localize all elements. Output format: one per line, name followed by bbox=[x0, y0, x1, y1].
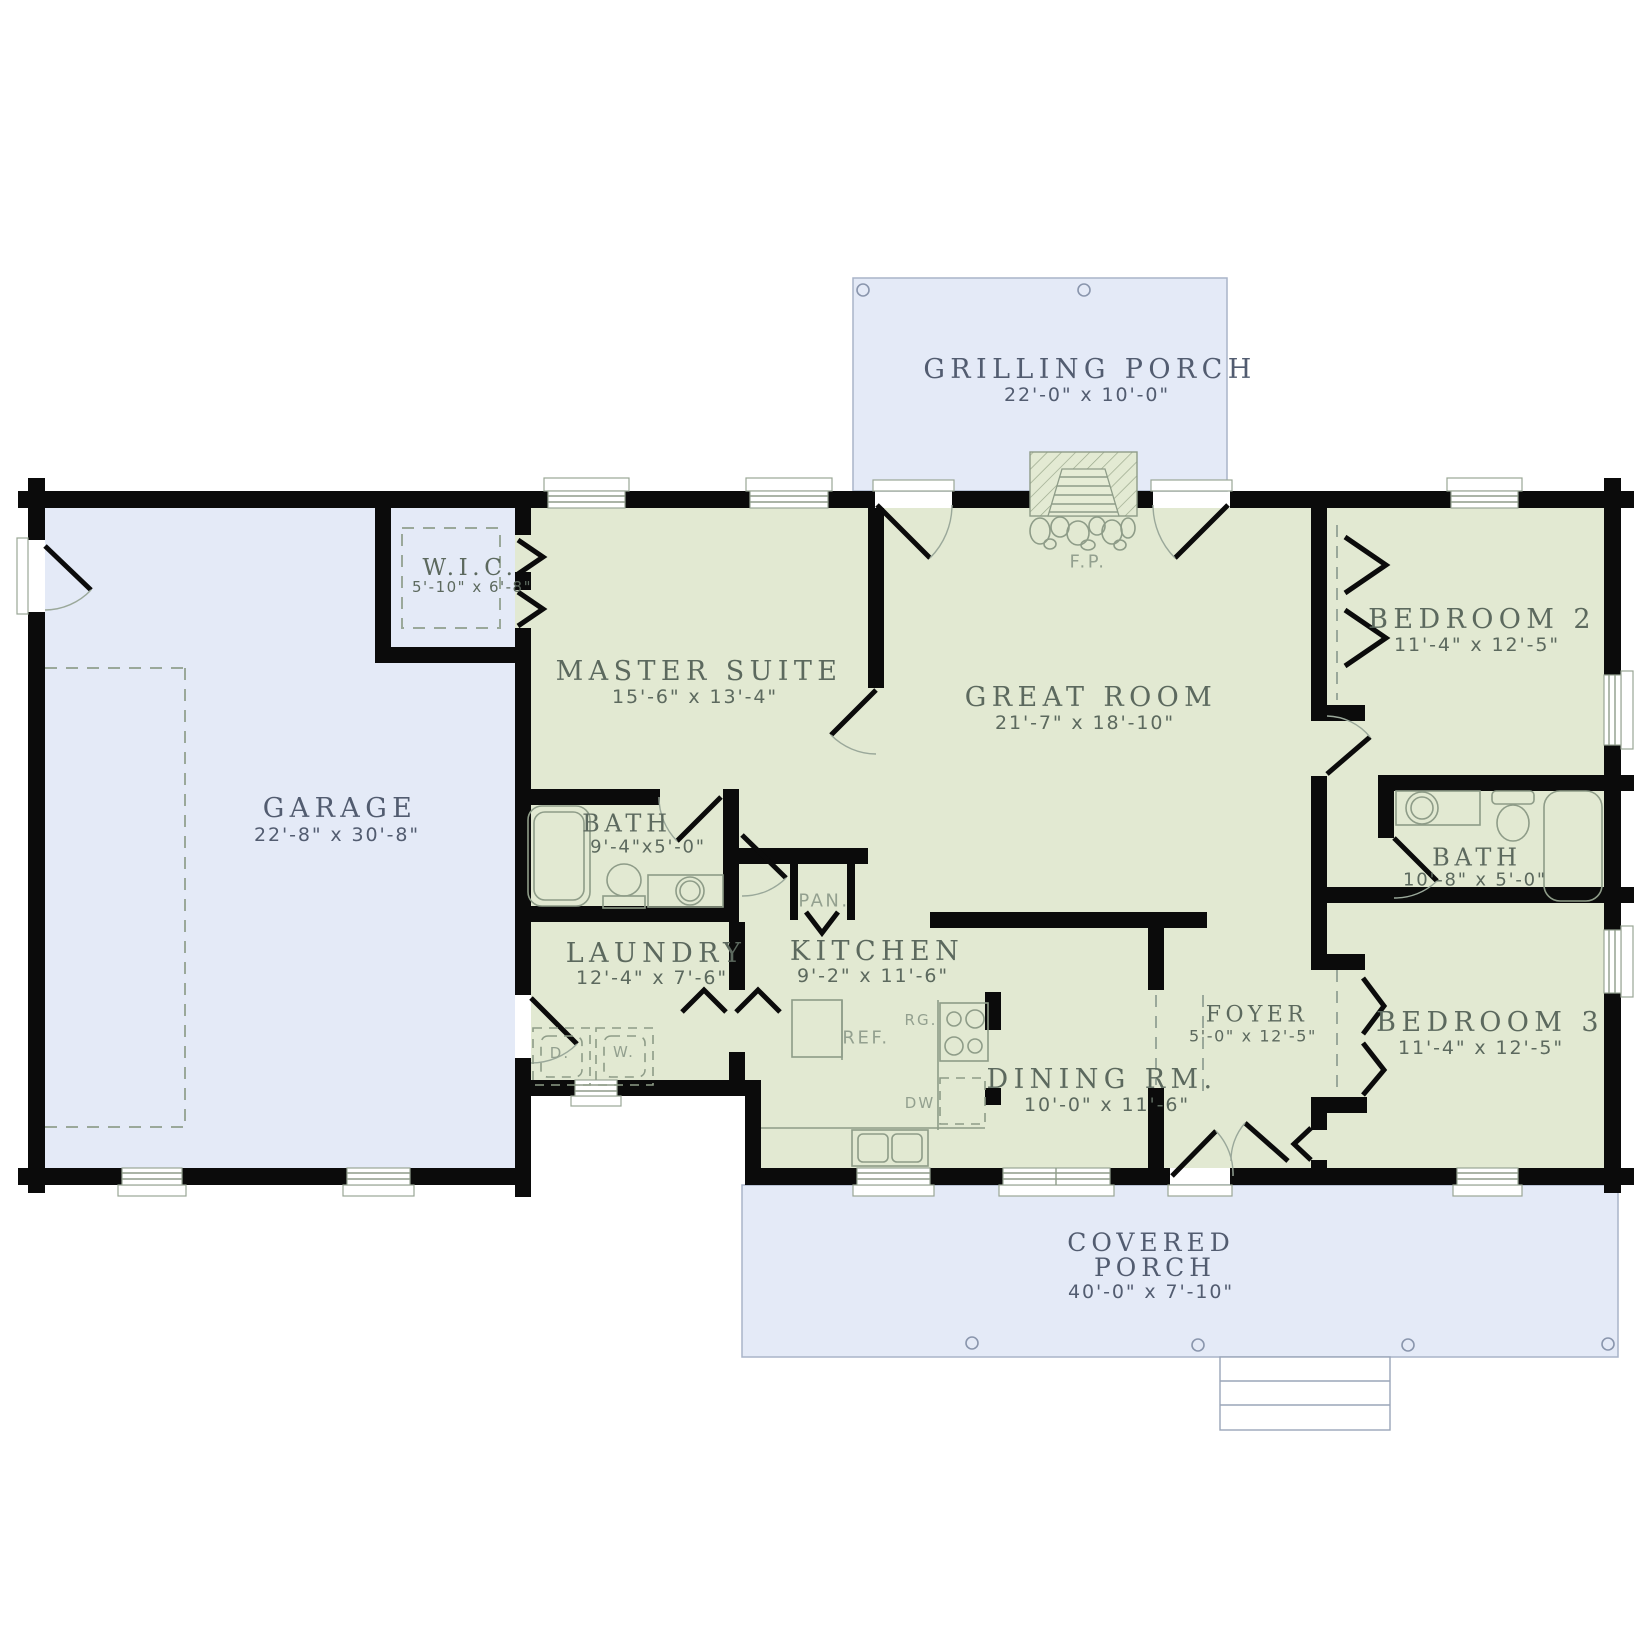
floor-plan-drawing bbox=[0, 0, 1650, 1650]
room-dims-master-suite: 15'-6" x 13'-4" bbox=[612, 688, 778, 708]
room-label-laundry: LAUNDRY bbox=[566, 940, 747, 968]
room-label-covered-porch-line2: PORCH bbox=[1094, 1255, 1216, 1281]
pantry-label: PAN. bbox=[798, 891, 849, 912]
room-dims-grilling-porch: 22'-0" x 10'-0" bbox=[1004, 386, 1170, 406]
room-dims-foyer: 5'-0" x 12'-5" bbox=[1189, 1029, 1317, 1046]
room-label-bedroom3: BEDROOM 3 bbox=[1376, 1009, 1604, 1037]
room-dims-kitchen: 9'-2" x 11'-6" bbox=[797, 967, 949, 987]
room-dims-dining: 10'-0" x 11'-6" bbox=[1024, 1096, 1190, 1116]
room-dims-bedroom3: 11'-4" x 12'-5" bbox=[1398, 1039, 1564, 1059]
fireplace-label: F.P. bbox=[1069, 552, 1106, 573]
room-label-bath1: BATH bbox=[582, 811, 672, 836]
washer-label: W. bbox=[613, 1043, 635, 1061]
room-dims-garage: 22'-8" x 30'-8" bbox=[254, 826, 420, 846]
room-label-foyer: FOYER bbox=[1206, 1003, 1308, 1026]
room-dims-laundry: 12'-4" x 7'-6" bbox=[576, 969, 728, 989]
room-dims-wic: 5'-10" x 6'-8" bbox=[412, 580, 532, 596]
porch-steps bbox=[1220, 1357, 1390, 1430]
dryer-label: D. bbox=[550, 1044, 571, 1062]
room-label-dining: DINING RM. bbox=[987, 1066, 1218, 1094]
refrigerator-label: REF. bbox=[842, 1028, 889, 1049]
room-dims-bath1: 9'-4"x5'-0" bbox=[590, 839, 706, 858]
room-label-bedroom2: BEDROOM 2 bbox=[1368, 606, 1596, 634]
room-label-bath2: BATH bbox=[1432, 845, 1522, 870]
room-label-great-room: GREAT ROOM bbox=[965, 684, 1217, 712]
dishwasher-label: DW bbox=[905, 1094, 936, 1112]
room-label-master-suite: MASTER SUITE bbox=[556, 658, 843, 686]
room-dims-covered-porch: 40'-0" x 7'-10" bbox=[1068, 1283, 1234, 1303]
room-label-kitchen: KITCHEN bbox=[790, 938, 964, 966]
room-label-wic: W.I.C. bbox=[422, 556, 517, 580]
room-label-grilling-porch: GRILLING PORCH bbox=[923, 356, 1256, 384]
room-dims-bath2: 10'-8" x 5'-0" bbox=[1403, 872, 1547, 891]
room-dims-bedroom2: 11'-4" x 12'-5" bbox=[1394, 636, 1560, 656]
floor-plan: GRILLING PORCH 22'-0" x 10'-0" GARAGE 22… bbox=[0, 0, 1650, 1650]
range-label: RG. bbox=[904, 1011, 937, 1029]
room-dims-great-room: 21'-7" x 18'-10" bbox=[995, 714, 1175, 734]
room-label-garage: GARAGE bbox=[263, 795, 418, 823]
